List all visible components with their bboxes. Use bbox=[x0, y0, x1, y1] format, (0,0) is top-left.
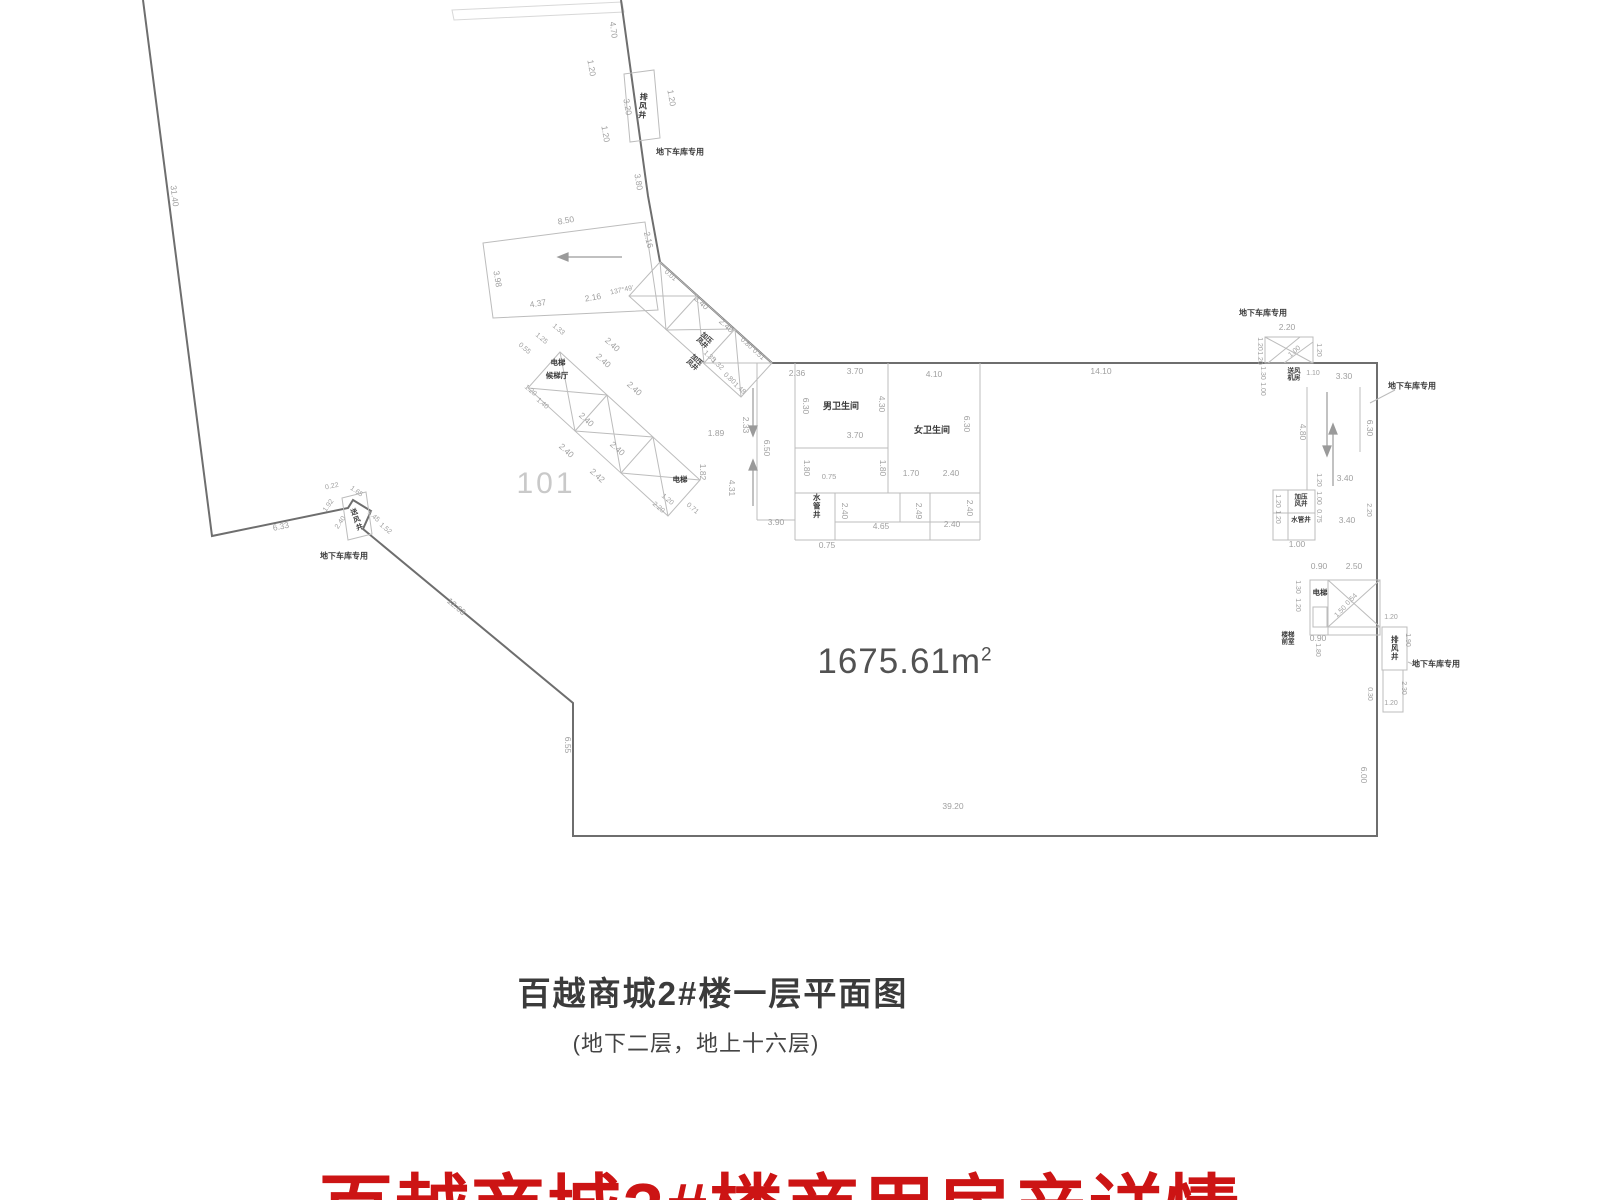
dimension-label: 31.40 bbox=[168, 185, 180, 207]
dimension-label: 3.98 bbox=[491, 270, 503, 288]
dimension-label: 3.30 bbox=[1336, 372, 1353, 382]
dimension-label: 4.10 bbox=[926, 370, 943, 380]
room-label: 排风井 bbox=[1390, 635, 1398, 661]
dimension-label: 3.70 bbox=[847, 367, 864, 377]
dimension-label: 1.20 bbox=[1384, 614, 1398, 622]
dimension-label: 6.00 bbox=[1358, 767, 1368, 784]
dimension-label: 2.30 bbox=[1399, 681, 1407, 695]
top-cutoff-shape bbox=[452, 2, 624, 20]
room-label: 楼梯 前室 bbox=[1282, 632, 1295, 647]
dimension-label: 2.40 bbox=[944, 520, 961, 530]
room-label: 加压 风井 bbox=[1295, 494, 1308, 509]
dimension-label: 2.20 bbox=[1279, 323, 1296, 333]
dimension-label: 3.80 bbox=[632, 173, 644, 191]
dimension-label: 1.70 bbox=[903, 469, 920, 479]
dimension-label: 6.30 bbox=[800, 398, 810, 415]
plan-caption-title: 百越商城2#楼一层平面图 bbox=[518, 967, 909, 1015]
room-label: 女卫生间 bbox=[914, 425, 950, 435]
dimension-label: 6.50 bbox=[761, 440, 771, 457]
room-label: 水管井 bbox=[1291, 516, 1311, 523]
room-label: 地下车库专用 bbox=[656, 149, 704, 158]
area-label: 1675.61m2 bbox=[817, 642, 992, 682]
dimension-label: 1.80 bbox=[801, 460, 811, 477]
area-superscript: 2 bbox=[981, 644, 993, 665]
room-label: 地下车库专用 bbox=[320, 553, 368, 562]
dimension-label: 6.30 bbox=[1364, 420, 1374, 437]
dimension-label: 1.20 bbox=[1384, 700, 1398, 708]
dimension-label: 2.40 bbox=[943, 469, 960, 479]
dimension-label: 3.90 bbox=[768, 518, 785, 528]
dimension-label: 3.20 bbox=[621, 98, 633, 116]
dimension-label: 1.00 bbox=[1289, 540, 1306, 550]
dimension-label: 2.36 bbox=[789, 369, 806, 379]
dimension-label: 1.00 bbox=[1258, 382, 1266, 396]
plan-caption-subtitle: (地下二层，地上十六层) bbox=[573, 1026, 820, 1058]
room-label: 电梯 bbox=[673, 476, 688, 484]
dimension-label: 1.89 bbox=[708, 429, 725, 439]
dimension-label: 6.30 bbox=[961, 416, 971, 433]
floor-plan-drawing bbox=[0, 0, 1600, 880]
room-label: 电梯 bbox=[551, 359, 566, 367]
dimension-label: 6.55 bbox=[562, 737, 572, 754]
page-title-red: 百越商城3#楼商用房产详情 bbox=[319, 1150, 1241, 1200]
dimension-label: 3.70 bbox=[847, 431, 864, 441]
room-label: 地下车库专用 bbox=[1412, 661, 1460, 670]
room-label: 水管井 bbox=[812, 493, 820, 519]
page: 31.404.701.203.201.201.203.808.502.163.9… bbox=[0, 0, 1600, 1200]
dimension-label: 1.82 bbox=[697, 464, 707, 481]
room-label: 排风井 bbox=[636, 92, 647, 120]
dimension-label: 1.20 bbox=[1273, 494, 1281, 508]
dimension-label: 1.00 bbox=[1314, 491, 1322, 505]
dimension-label: 1.20 bbox=[1255, 337, 1263, 351]
dimension-label: 0.90 bbox=[1311, 562, 1328, 572]
room-label: 送风 机房 bbox=[1288, 368, 1301, 383]
dimension-label: 4.31 bbox=[726, 480, 736, 497]
dimension-label: 4.30 bbox=[876, 396, 886, 413]
dimension-label: 1.30 bbox=[1293, 580, 1301, 594]
area-value: 1675.61m bbox=[817, 642, 981, 681]
dimension-label: 1.90 bbox=[1403, 633, 1411, 647]
dimension-label: 1.10 bbox=[1306, 370, 1320, 378]
dimension-label: 1.80 bbox=[1313, 643, 1321, 657]
dimension-label: 1.20 bbox=[1314, 343, 1322, 357]
dimension-label: 1.30 bbox=[1258, 366, 1266, 380]
room-label: 候梯厅 bbox=[546, 372, 569, 380]
dimension-label: 1.20 bbox=[1314, 473, 1322, 487]
dimension-label: 2.50 bbox=[1346, 562, 1363, 572]
unit-boundary bbox=[143, 0, 1377, 836]
room-label: 男卫生间 bbox=[823, 401, 859, 411]
dimension-label: 1.20 bbox=[585, 59, 597, 77]
dimension-label: 2.33 bbox=[740, 417, 750, 434]
dimension-label: 14.10 bbox=[1090, 367, 1111, 377]
dimension-label: 0.75 bbox=[819, 541, 836, 551]
dimension-label: 2.20 bbox=[1364, 503, 1372, 517]
room-label: 地下车库专用 bbox=[1388, 383, 1436, 392]
dimension-label: 1.20 bbox=[665, 89, 677, 107]
dimension-label: 3.40 bbox=[1339, 516, 1356, 526]
room-label: 地下车库专用 bbox=[1239, 310, 1287, 319]
floor-plan: 31.404.701.203.201.201.203.808.502.163.9… bbox=[0, 0, 1600, 880]
dimension-label: 4.80 bbox=[1297, 424, 1307, 441]
dimension-label: 0.75 bbox=[1314, 509, 1322, 523]
dimension-label: 1.20 bbox=[599, 125, 611, 143]
dimension-label: 4.70 bbox=[607, 21, 618, 39]
dimension-label: 4.65 bbox=[873, 522, 890, 532]
dimension-label: 1.80 bbox=[877, 460, 887, 477]
dimension-label: 2.49 bbox=[913, 503, 923, 520]
room-label: 电梯 bbox=[1313, 589, 1328, 597]
dimension-label: 0.75 bbox=[822, 473, 837, 481]
dimension-label: 1.20 bbox=[1293, 598, 1301, 612]
dimension-label: 1.20 bbox=[1255, 351, 1263, 365]
dimension-label: 3.40 bbox=[1337, 474, 1354, 484]
dimension-label: 2.40 bbox=[839, 503, 849, 520]
dimension-label: 1.20 bbox=[1273, 510, 1281, 524]
dimension-label: 2.40 bbox=[964, 500, 974, 517]
unit-number-label: 101 bbox=[516, 467, 575, 501]
dimension-label: 0.30 bbox=[1365, 687, 1373, 701]
dimension-label: 39.20 bbox=[942, 802, 963, 812]
